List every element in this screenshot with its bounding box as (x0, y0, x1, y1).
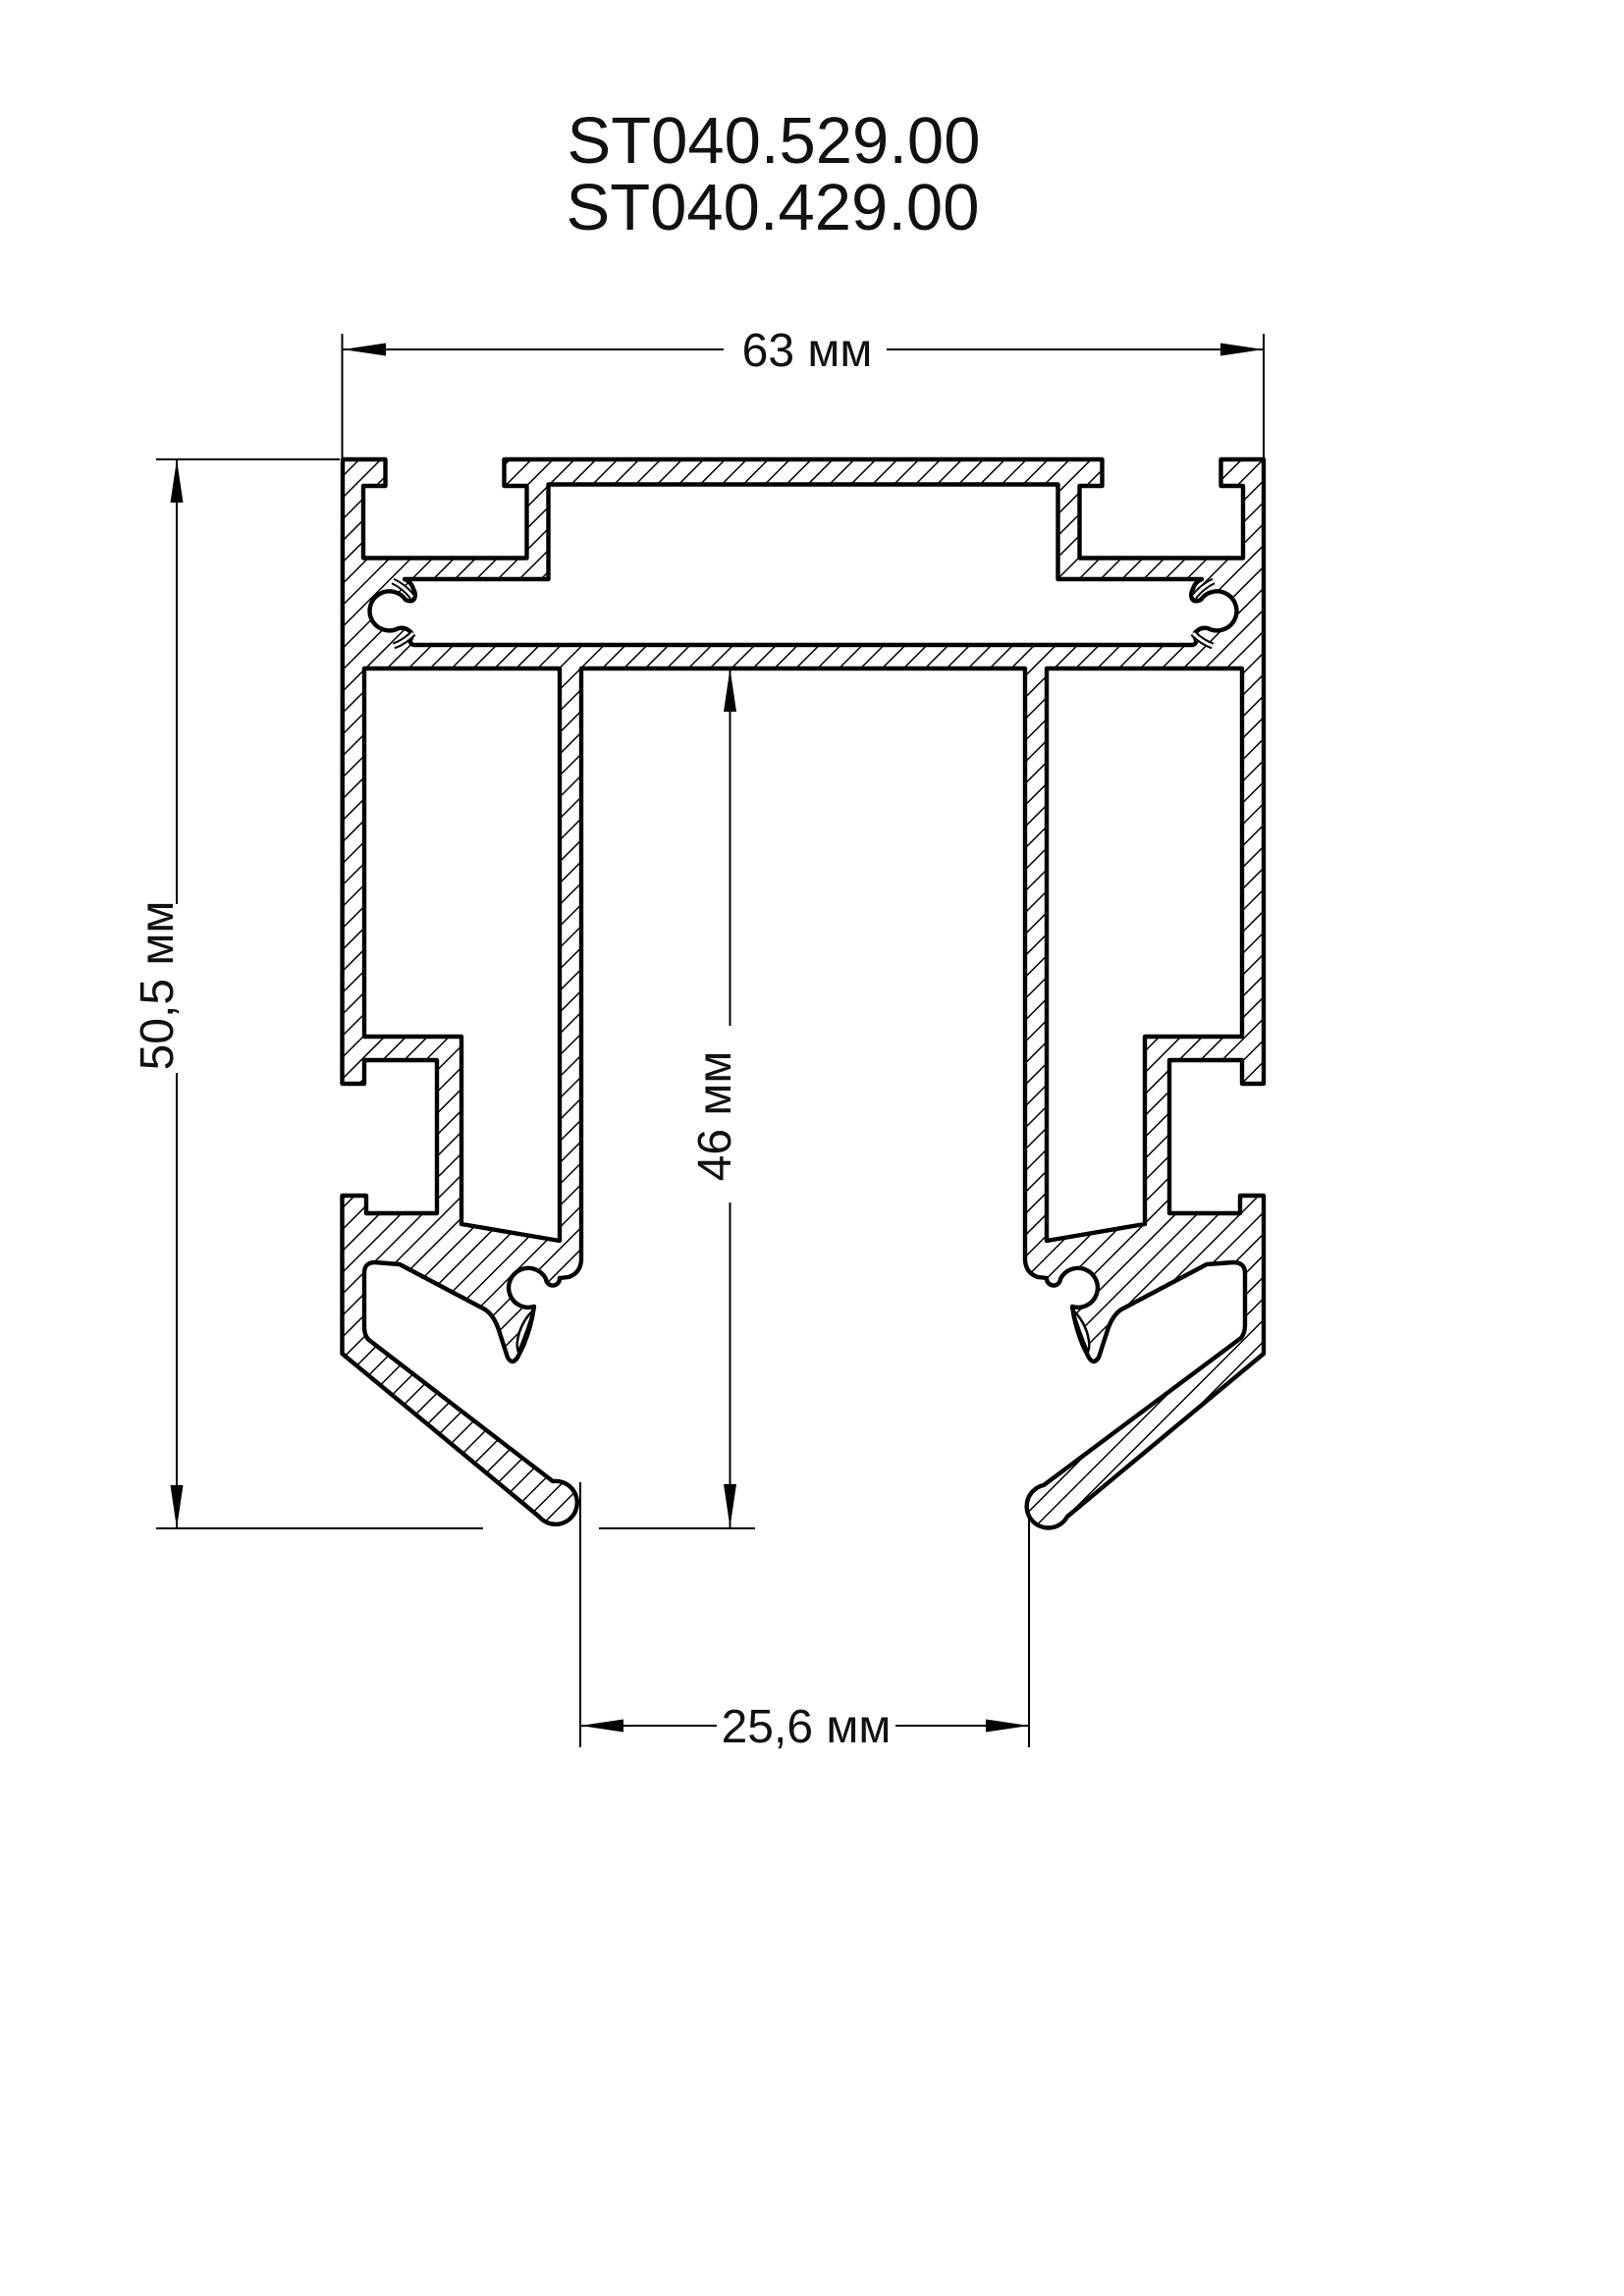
svg-text:46 мм: 46 мм (689, 1051, 741, 1182)
svg-text:50,5 мм: 50,5 мм (132, 901, 184, 1071)
svg-text:ST040.429.00: ST040.429.00 (567, 171, 980, 244)
svg-text:ST040.529.00: ST040.529.00 (568, 104, 981, 178)
svg-text:25,6 мм: 25,6 мм (722, 1701, 892, 1753)
svg-text:63 мм: 63 мм (742, 325, 873, 377)
